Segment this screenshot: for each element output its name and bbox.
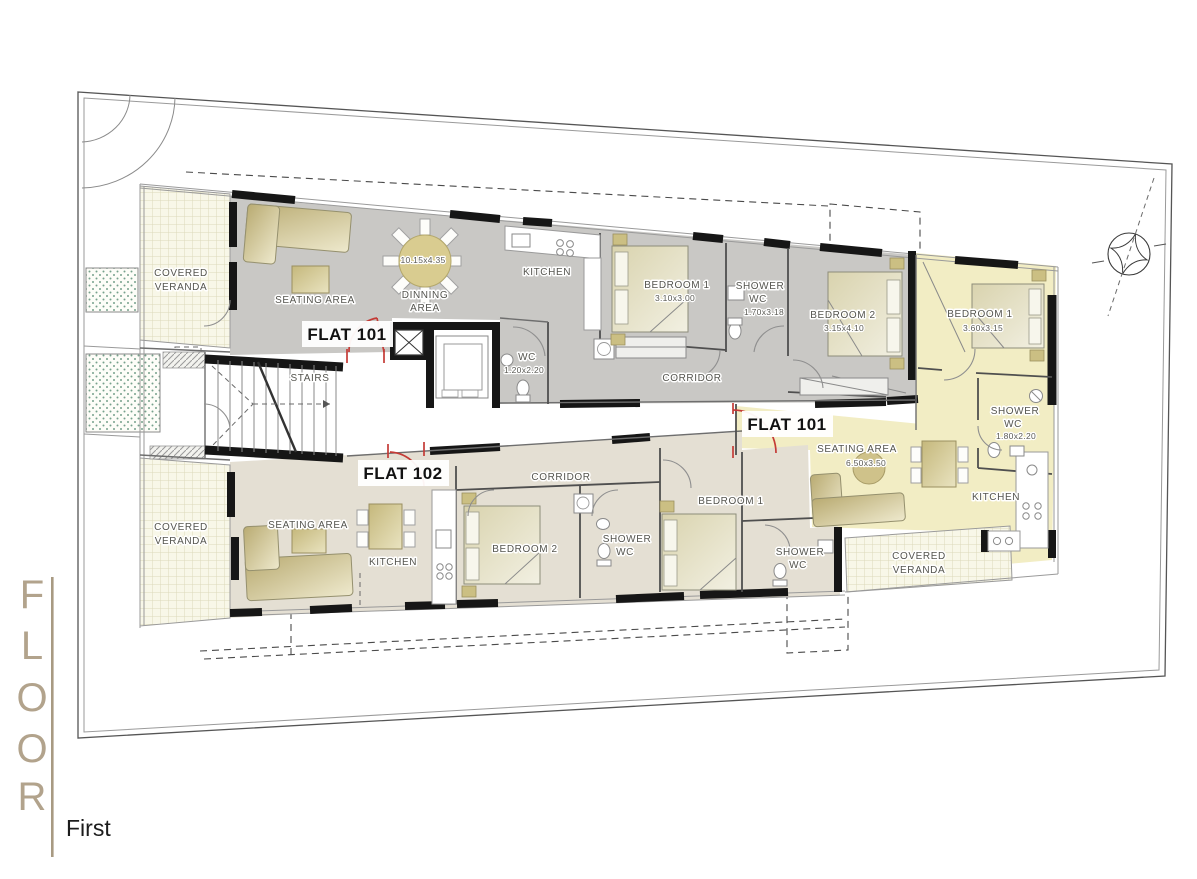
flat-101-right-label: FLAT 101 [747, 415, 826, 434]
room-label-veranda-bl-1: COVERED [154, 522, 208, 533]
floor-plan-drawing: COVERED VERANDA SEATING AREA 10.15x4.35 … [0, 0, 1197, 879]
room-label-bedroom2-f101u: BEDROOM 2 [810, 310, 875, 321]
flat-102-label: FLAT 102 [363, 464, 442, 483]
room-label-shower-f101r-1: SHOWER [991, 406, 1040, 417]
coffee-table-flat101-upper [292, 266, 329, 293]
room-label-shower-br-f102-2: WC [789, 560, 807, 571]
room-label-corridor-f102: CORRIDOR [531, 472, 590, 483]
dims-shower-f101r: 1.80x2.20 [996, 431, 1036, 441]
floor-word-letter-r: R [18, 775, 47, 819]
room-label-bedroom1-f101u: BEDROOM 1 [644, 280, 709, 291]
flat-101-upper-label: FLAT 101 [307, 325, 386, 344]
room-label-bedroom2-f102: BEDROOM 2 [492, 544, 557, 555]
room-label-shower-mid-f102-2: WC [616, 547, 634, 558]
room-label-wc-common: WC [518, 352, 536, 363]
room-label-dinning-2: AREA [410, 303, 440, 314]
room-label-corridor-f101u: CORRIDOR [662, 373, 721, 384]
room-label-kitchen-f102: KITCHEN [369, 557, 417, 568]
floor-word-letter-l: L [21, 624, 43, 668]
title-divider-line [51, 577, 54, 857]
floor-word-letter-f: F [20, 573, 44, 617]
dims-wc-common: 1.20x2.20 [504, 365, 544, 375]
dims-bedroom1-f101u: 3.10x3.00 [655, 293, 695, 303]
room-label-kitchen-f101u: KITCHEN [523, 267, 571, 278]
dims-bedroom2-f101u: 3.15x4.10 [824, 323, 864, 333]
room-label-bedroom1-f101r: BEDROOM 1 [947, 309, 1012, 320]
room-label-shower-f101u-1: SHOWER [736, 281, 785, 292]
room-label-seating-f102: SEATING AREA [268, 520, 348, 531]
room-label-bedroom1-f102: BEDROOM 1 [698, 496, 763, 507]
dims-seating-f101r: 6.50x3.50 [846, 458, 886, 468]
room-label-veranda-tl-1: COVERED [154, 268, 208, 279]
room-label-seating-f101u: SEATING AREA [275, 295, 355, 306]
room-label-shower-f101r-2: WC [1004, 419, 1022, 430]
floor-word-letter-o1: O [16, 676, 47, 720]
covered-veranda-top-left [140, 186, 230, 348]
room-label-veranda-tl-2: VERANDA [155, 282, 208, 293]
coffee-table-flat102 [292, 529, 326, 553]
dims-dinning-f101u: 10.15x4.35 [400, 255, 445, 265]
room-label-shower-f101u-2: WC [749, 294, 767, 305]
bed-flat102-bedroom1 [660, 501, 736, 590]
site-corner-arc [82, 98, 175, 188]
site-corner-arc-2 [82, 95, 130, 142]
room-label-seating-f101r: SEATING AREA [817, 444, 897, 455]
floor-name-label: First [66, 815, 111, 841]
room-label-veranda-br-2: VERANDA [893, 565, 946, 576]
floor-plan-page: COVERED VERANDA SEATING AREA 10.15x4.35 … [0, 0, 1197, 879]
elevator [390, 322, 500, 408]
room-label-dinning-1: DINNING [402, 290, 448, 301]
coffee-table-flat101-right [853, 452, 885, 484]
room-label-shower-br-f102-1: SHOWER [776, 547, 825, 558]
dims-shower-f101u: 1.70x3.18 [744, 307, 784, 317]
room-label-veranda-br-1: COVERED [892, 551, 946, 562]
floor-word-letter-o2: O [16, 727, 47, 771]
north-compass-icon [1092, 178, 1166, 316]
room-label-shower-mid-f102-1: SHOWER [603, 534, 652, 545]
dims-bedroom1-f101r: 3.60x3.15 [963, 323, 1003, 333]
floor-title-block: F L O O R First [16, 573, 111, 857]
room-label-stairs: STAIRS [291, 373, 330, 384]
room-label-kitchen-f101r: KITCHEN [972, 492, 1020, 503]
kitchen-counter-flat102 [432, 490, 456, 604]
room-label-veranda-bl-2: VERANDA [155, 536, 208, 547]
